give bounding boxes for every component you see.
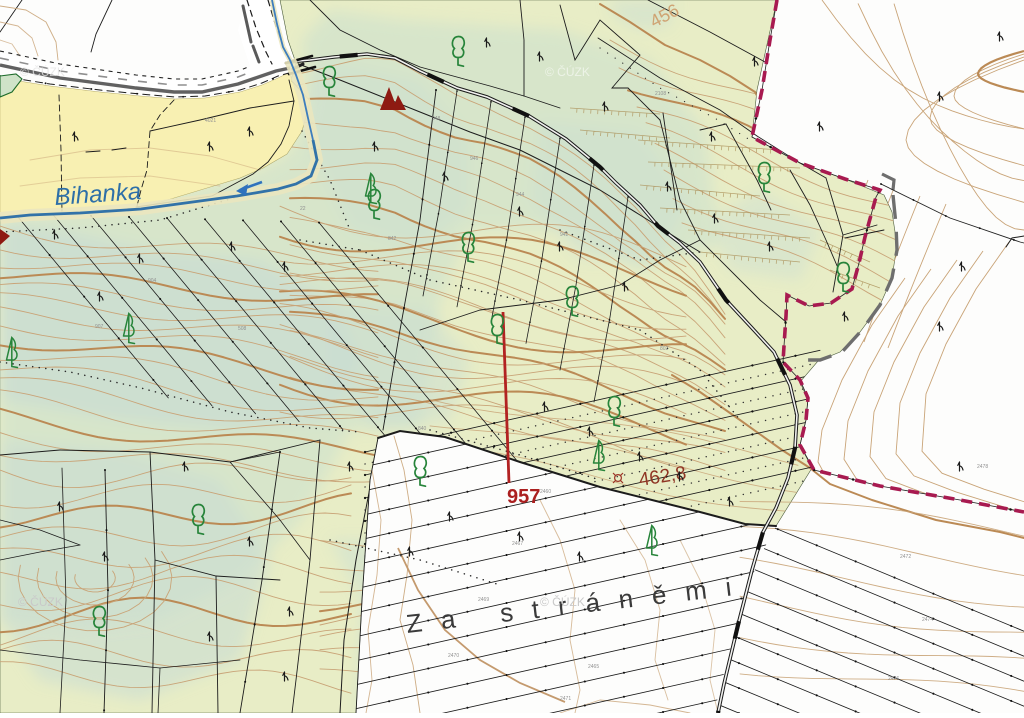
svg-text:957: 957 bbox=[507, 486, 540, 508]
svg-text:946: 946 bbox=[470, 156, 479, 162]
svg-text:802: 802 bbox=[660, 346, 669, 352]
svg-text:© ČÚZK: © ČÚZK bbox=[20, 64, 65, 79]
svg-text:© ČÚZK: © ČÚZK bbox=[540, 594, 585, 609]
svg-text:2465: 2465 bbox=[588, 664, 599, 670]
svg-text:907: 907 bbox=[95, 324, 104, 330]
svg-text:4021: 4021 bbox=[205, 118, 216, 124]
svg-text:2108: 2108 bbox=[655, 91, 666, 97]
svg-text:© ČÚZK: © ČÚZK bbox=[18, 594, 63, 609]
svg-text:948: 948 bbox=[432, 116, 441, 122]
svg-text:2471: 2471 bbox=[560, 696, 571, 702]
svg-text:2474: 2474 bbox=[922, 617, 933, 623]
svg-text:840: 840 bbox=[418, 426, 427, 432]
svg-text:904: 904 bbox=[148, 278, 157, 284]
svg-text:2467: 2467 bbox=[512, 541, 523, 547]
svg-text:2472: 2472 bbox=[900, 554, 911, 560]
svg-text:842: 842 bbox=[388, 236, 397, 242]
svg-text:2476: 2476 bbox=[888, 676, 899, 682]
svg-text:© ČÚZK: © ČÚZK bbox=[545, 64, 590, 79]
svg-text:2470: 2470 bbox=[448, 653, 459, 659]
svg-text:2460: 2460 bbox=[540, 489, 551, 495]
svg-text:944: 944 bbox=[516, 192, 525, 198]
svg-text:22: 22 bbox=[300, 206, 306, 212]
svg-text:2478: 2478 bbox=[977, 464, 988, 470]
svg-text:942: 942 bbox=[560, 232, 569, 238]
svg-text:2469: 2469 bbox=[478, 597, 489, 603]
svg-text:508: 508 bbox=[238, 326, 247, 332]
